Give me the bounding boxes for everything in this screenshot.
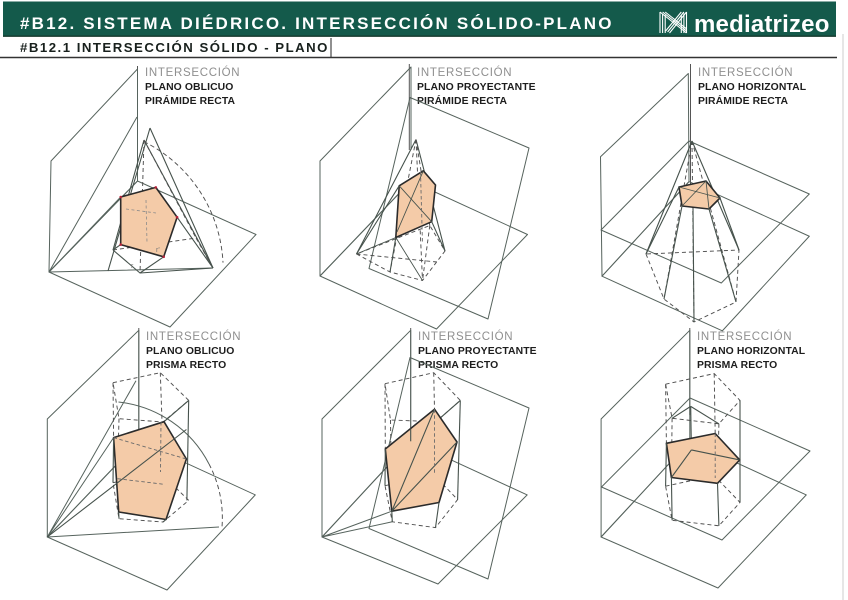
svg-text:#B12.1 INTERSECCIÓN SÓLIDO - P: #B12.1 INTERSECCIÓN SÓLIDO - PLANO xyxy=(20,40,329,55)
svg-text:INTERSECCIÓN: INTERSECCIÓN xyxy=(146,330,241,343)
svg-text:PIRÁMIDE RECTA: PIRÁMIDE RECTA xyxy=(417,94,508,107)
svg-text:PLANO OBLICUO: PLANO OBLICUO xyxy=(146,346,234,357)
svg-text:r': r' xyxy=(156,247,160,254)
svg-text:mediatrizeo: mediatrizeo xyxy=(694,11,830,38)
svg-text:INTERSECCIÓN: INTERSECCIÓN xyxy=(417,66,512,79)
svg-text:PRISMA RECTO: PRISMA RECTO xyxy=(697,360,777,371)
svg-text:PLANO HORIZONTAL: PLANO HORIZONTAL xyxy=(698,82,807,93)
svg-text:PLANO PROYECTANTE: PLANO PROYECTANTE xyxy=(418,346,537,357)
svg-text:PLANO OBLICUO: PLANO OBLICUO xyxy=(145,82,233,93)
svg-text:INTERSECCIÓN: INTERSECCIÓN xyxy=(698,66,793,79)
svg-text:INTERSECCIÓN: INTERSECCIÓN xyxy=(418,330,513,343)
svg-text:PIRÁMIDE RECTA: PIRÁMIDE RECTA xyxy=(698,94,789,107)
svg-text:#B12. SISTEMA DIÉDRICO. INTERS: #B12. SISTEMA DIÉDRICO. INTERSECCIÓN SÓL… xyxy=(20,14,614,33)
svg-text:PRISMA RECTO: PRISMA RECTO xyxy=(146,360,226,371)
svg-text:PLANO HORIZONTAL: PLANO HORIZONTAL xyxy=(697,346,806,357)
svg-text:INTERSECCIÓN: INTERSECCIÓN xyxy=(697,330,792,343)
svg-text:PLANO PROYECTANTE: PLANO PROYECTANTE xyxy=(417,82,536,93)
svg-text:INTERSECCIÓN: INTERSECCIÓN xyxy=(145,66,240,79)
svg-text:PIRÁMIDE RECTA: PIRÁMIDE RECTA xyxy=(145,94,236,107)
